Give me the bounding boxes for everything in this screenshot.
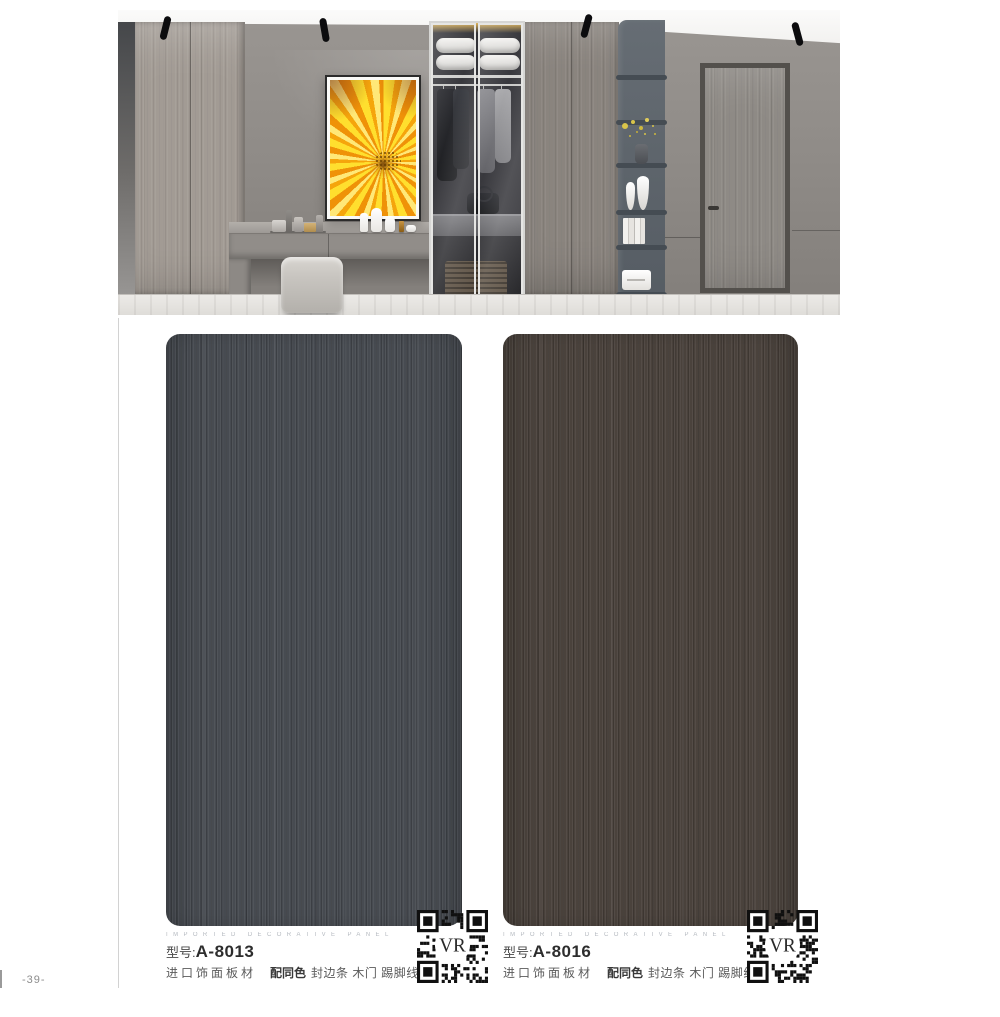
qr-vr-label: VR <box>769 935 796 956</box>
plant-vase <box>635 144 648 164</box>
stool <box>281 257 343 313</box>
left-margin-rule <box>118 318 119 988</box>
amber-bottle <box>399 221 404 232</box>
glass-door-left <box>431 23 476 303</box>
white-vase <box>637 176 649 210</box>
open-shelving-unit <box>618 20 665 306</box>
description-line: 进口饰面板材 配同色 封边条 木门 踢脚线 <box>166 964 419 981</box>
vr-qr-code: VR <box>747 910 818 983</box>
glass-door-wardrobe <box>429 21 525 305</box>
left-edge-tick <box>0 970 2 988</box>
cosmetics-cluster <box>270 200 330 233</box>
white-box-printer <box>622 270 651 290</box>
shelf-board <box>616 75 667 80</box>
white-box <box>272 220 286 232</box>
description-line: 进口饰面板材 配同色 封边条 木门 踢脚线 <box>503 964 756 981</box>
white-jar <box>406 225 416 232</box>
white-vase <box>626 182 635 210</box>
panel-swatch-a8016 <box>503 334 798 926</box>
desc-material: 进口饰面板材 <box>503 964 593 981</box>
interior-door <box>700 63 790 293</box>
model-line: 型号: A-8016 <box>503 942 591 962</box>
model-code: A-8016 <box>533 942 592 962</box>
drawer-divider <box>328 234 329 259</box>
vr-qr-code: VR <box>417 910 488 983</box>
panel-swatch-a8013 <box>166 334 462 926</box>
white-bottle-small <box>360 213 368 232</box>
desc-rest: 封边条 木门 踢脚线 <box>648 964 756 981</box>
desc-rest: 封边条 木门 踢脚线 <box>311 964 419 981</box>
gray-bottle <box>316 215 323 232</box>
wall-seam <box>665 237 700 238</box>
gold-box <box>304 223 316 232</box>
door-handle <box>708 206 719 210</box>
wall-seam <box>792 230 840 231</box>
glass-door-right <box>478 23 523 303</box>
shelf-board <box>616 210 667 215</box>
model-line: 型号: A-8013 <box>166 942 254 962</box>
white-bottle-round <box>385 216 395 232</box>
panel-seam <box>571 22 572 294</box>
dressing-table-drawers <box>229 234 434 259</box>
books <box>623 218 645 244</box>
eyebrow-text: IMPORTED DECORATIVE PANEL <box>503 932 747 938</box>
left-shadow-edge <box>118 22 136 294</box>
shelf-board <box>616 245 667 250</box>
eyebrow-text: IMPORTED DECORATIVE PANEL <box>166 932 410 938</box>
perfume-bottles <box>358 196 418 233</box>
floor <box>118 294 840 315</box>
yellow-plant <box>622 123 628 129</box>
silver-jar <box>294 217 303 232</box>
desc-match-color: 配同色 <box>270 964 306 981</box>
page-number: -39- <box>22 974 46 986</box>
sunflower-center-seeds <box>375 151 401 171</box>
model-label: 型号: <box>166 942 196 961</box>
model-label: 型号: <box>503 942 533 961</box>
sprayer-bottle <box>286 210 292 232</box>
desc-material: 进口饰面板材 <box>166 964 256 981</box>
model-code: A-8013 <box>196 942 255 962</box>
wardrobe-door-seam <box>190 22 191 294</box>
desc-match-color: 配同色 <box>607 964 643 981</box>
white-bottle-tall <box>371 208 382 232</box>
interior-photo <box>118 10 840 315</box>
right-wardrobe-panels <box>525 22 619 294</box>
qr-vr-label: VR <box>439 935 466 956</box>
